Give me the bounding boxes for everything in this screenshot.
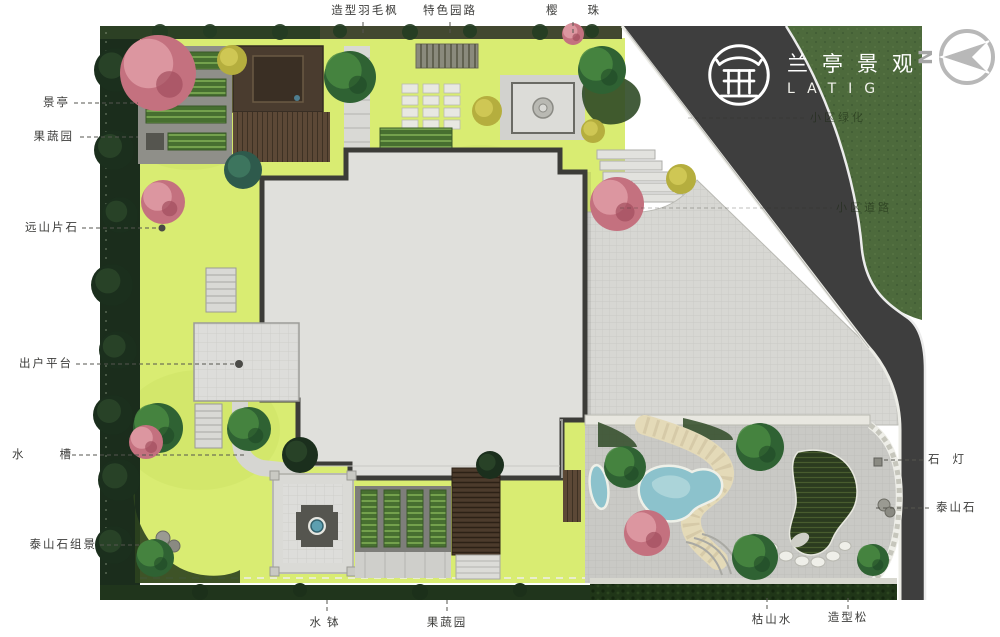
north-arrow-icon: [936, 26, 998, 88]
label-feature-path: 特色园路: [408, 5, 492, 17]
label-dry-landscape: 枯山水: [744, 614, 800, 626]
water-bowl-pavilion: [270, 471, 356, 576]
feature-square: [500, 75, 585, 140]
label-taishan-stone: 泰山石: [936, 502, 977, 514]
landscape-plan-page: 造型羽毛枫 特色园路 樱珠 景亭 果蔬园 远山片石 出户平台 水槽 泰山石组景 …: [0, 0, 1000, 637]
north-label: N: [915, 49, 937, 65]
pavilion-seal-icon: [706, 42, 772, 108]
label-pavilion: 景亭: [0, 97, 70, 109]
vegetable-garden-bottom: [355, 486, 451, 578]
label-shaped-feather-maple: 造型羽毛枫: [318, 5, 412, 17]
label-distant-mountain-stone: 远山片石: [0, 222, 79, 234]
label-community-road-faint: 小区道路: [836, 202, 892, 213]
label-cherry: 樱珠: [546, 5, 629, 17]
brand-name-cn: 兰亭景观: [787, 54, 927, 75]
label-vegetable-garden-left: 果蔬园: [0, 131, 74, 143]
label-stone-lamp: 石灯: [928, 454, 977, 466]
label-exit-platform: 出户平台: [0, 358, 73, 370]
brand-logo: 兰亭景观 LATIG: [706, 42, 927, 108]
leader-dots: [159, 225, 166, 232]
label-shaped-pine: 造型松: [820, 612, 876, 624]
label-water-bowl: 水钵: [300, 617, 354, 629]
label-water-trough: 水槽: [12, 449, 107, 461]
brand-text: 兰亭景观 LATIG: [787, 54, 927, 96]
label-vegetable-garden-bottom: 果蔬园: [420, 617, 474, 629]
label-community-green-faint: 小区绿化: [810, 112, 866, 123]
label-taishan-stone-group: 泰山石组景: [0, 539, 97, 551]
house-footprint: [262, 150, 585, 478]
brand-name-en: LATIG: [787, 82, 927, 96]
pavilion-deck: [233, 46, 330, 162]
